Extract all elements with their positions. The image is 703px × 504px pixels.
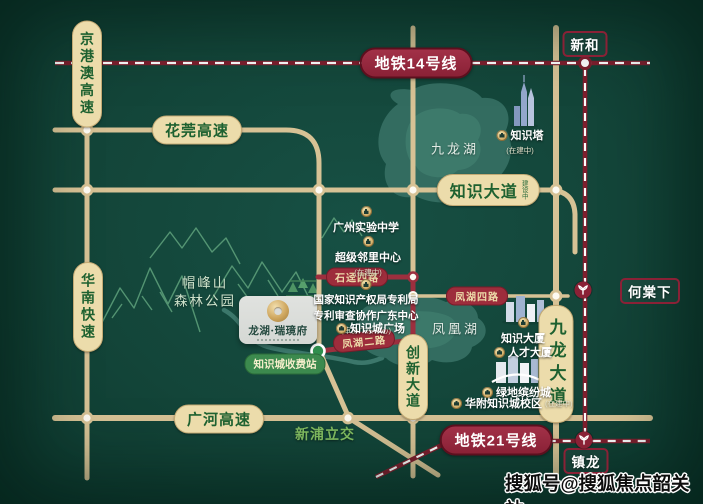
building-icon [494, 347, 505, 358]
lake-label-fenghuanghu: 凤凰湖 [432, 319, 480, 338]
poi-label: 超级邻里中心 [335, 249, 401, 265]
building-icon [361, 206, 372, 217]
poi-label: 华附知识城校区 [465, 395, 542, 411]
park-label-line1: 帽峰山 [174, 274, 236, 292]
highway-label-guanghe: 广河高速 [174, 405, 264, 434]
highway-label-huawan: 花莞高速 [152, 116, 242, 145]
project-tagline-rule [257, 339, 299, 341]
interchange-label: 新浦立交 [295, 424, 355, 444]
park-label-line2: 森林公园 [174, 292, 236, 310]
road-label-fenghu4: 凤湖四路 [446, 287, 508, 306]
station-dot-xinhe [580, 58, 591, 69]
poi-label: 知识城广场 [350, 320, 405, 336]
building-icon [363, 236, 374, 247]
poi-label: 知识塔 [511, 127, 544, 143]
location-map: 京港澳高速 花莞高速 华南快速 广河高速 知识大道 建设中 创新大道 九龙大道 … [0, 0, 703, 504]
toll-station-label: 知识城收费站 [245, 354, 326, 375]
poi-note: (在建中) [354, 267, 382, 278]
poi-label-line1: 国家知识产权局专利局 [314, 292, 419, 307]
lake-label-jiulonghu: 九龙湖 [431, 139, 479, 158]
metro-logo-icon [576, 432, 593, 449]
station-label-xinhe: 新和 [563, 31, 608, 57]
poi-affiliated-school: 华附知识城校区 (在建中) [451, 395, 573, 411]
park-label: 帽峰山 森林公园 [174, 274, 236, 309]
building-zhishi-tower [510, 75, 538, 129]
building-greenland [490, 356, 542, 387]
building-icon [497, 130, 508, 141]
poi-note: (在建中) [545, 398, 573, 409]
building-icon [451, 398, 462, 409]
poi-knowledge-tower: 知识塔 (在建中) [497, 127, 544, 156]
metro-logo-icon [575, 282, 592, 299]
poi-talent-mansion: 人才大厦 [494, 344, 552, 360]
poi-experimental-school: 广州实验中学 [333, 206, 399, 235]
building-icon [336, 323, 347, 334]
metro-line-21-label: 地铁21号线 [440, 425, 553, 456]
avenue-label-zhishi-text: 知识大道 [450, 178, 518, 202]
project-name: 龙湖·瑞璄府 [248, 323, 307, 338]
metro-line-14-label: 地铁14号线 [360, 48, 473, 79]
highway-label-huanan: 华南快速 [73, 262, 103, 352]
poi-neighborhood-center: 超级邻里中心 (在建中) [335, 236, 401, 278]
poi-label: 广州实验中学 [333, 219, 399, 235]
avenue-label-chuangxin: 创新大道 [398, 334, 428, 420]
building-icon [361, 279, 372, 290]
project-card: 龙湖·瑞璄府 [239, 296, 317, 344]
project-logo-icon [267, 300, 289, 322]
watermark: 搜狐号@搜狐焦点韶关站 [505, 470, 703, 504]
highway-label-jinggangao: 京港澳高速 [72, 21, 102, 128]
avenue-label-zhishi: 知识大道 建设中 [437, 174, 540, 206]
poi-knowledge-plaza: 知识城广场 [336, 320, 405, 336]
poi-note: (在建中) [506, 145, 534, 156]
station-label-hetangxia: 何棠下 [620, 278, 680, 304]
poi-zhishi-mansion: 知识大厦 [501, 317, 545, 346]
poi-label: 人才大厦 [508, 344, 552, 360]
avenue-zhishi-status: 建设中 [520, 180, 527, 200]
building-icon [518, 317, 529, 328]
